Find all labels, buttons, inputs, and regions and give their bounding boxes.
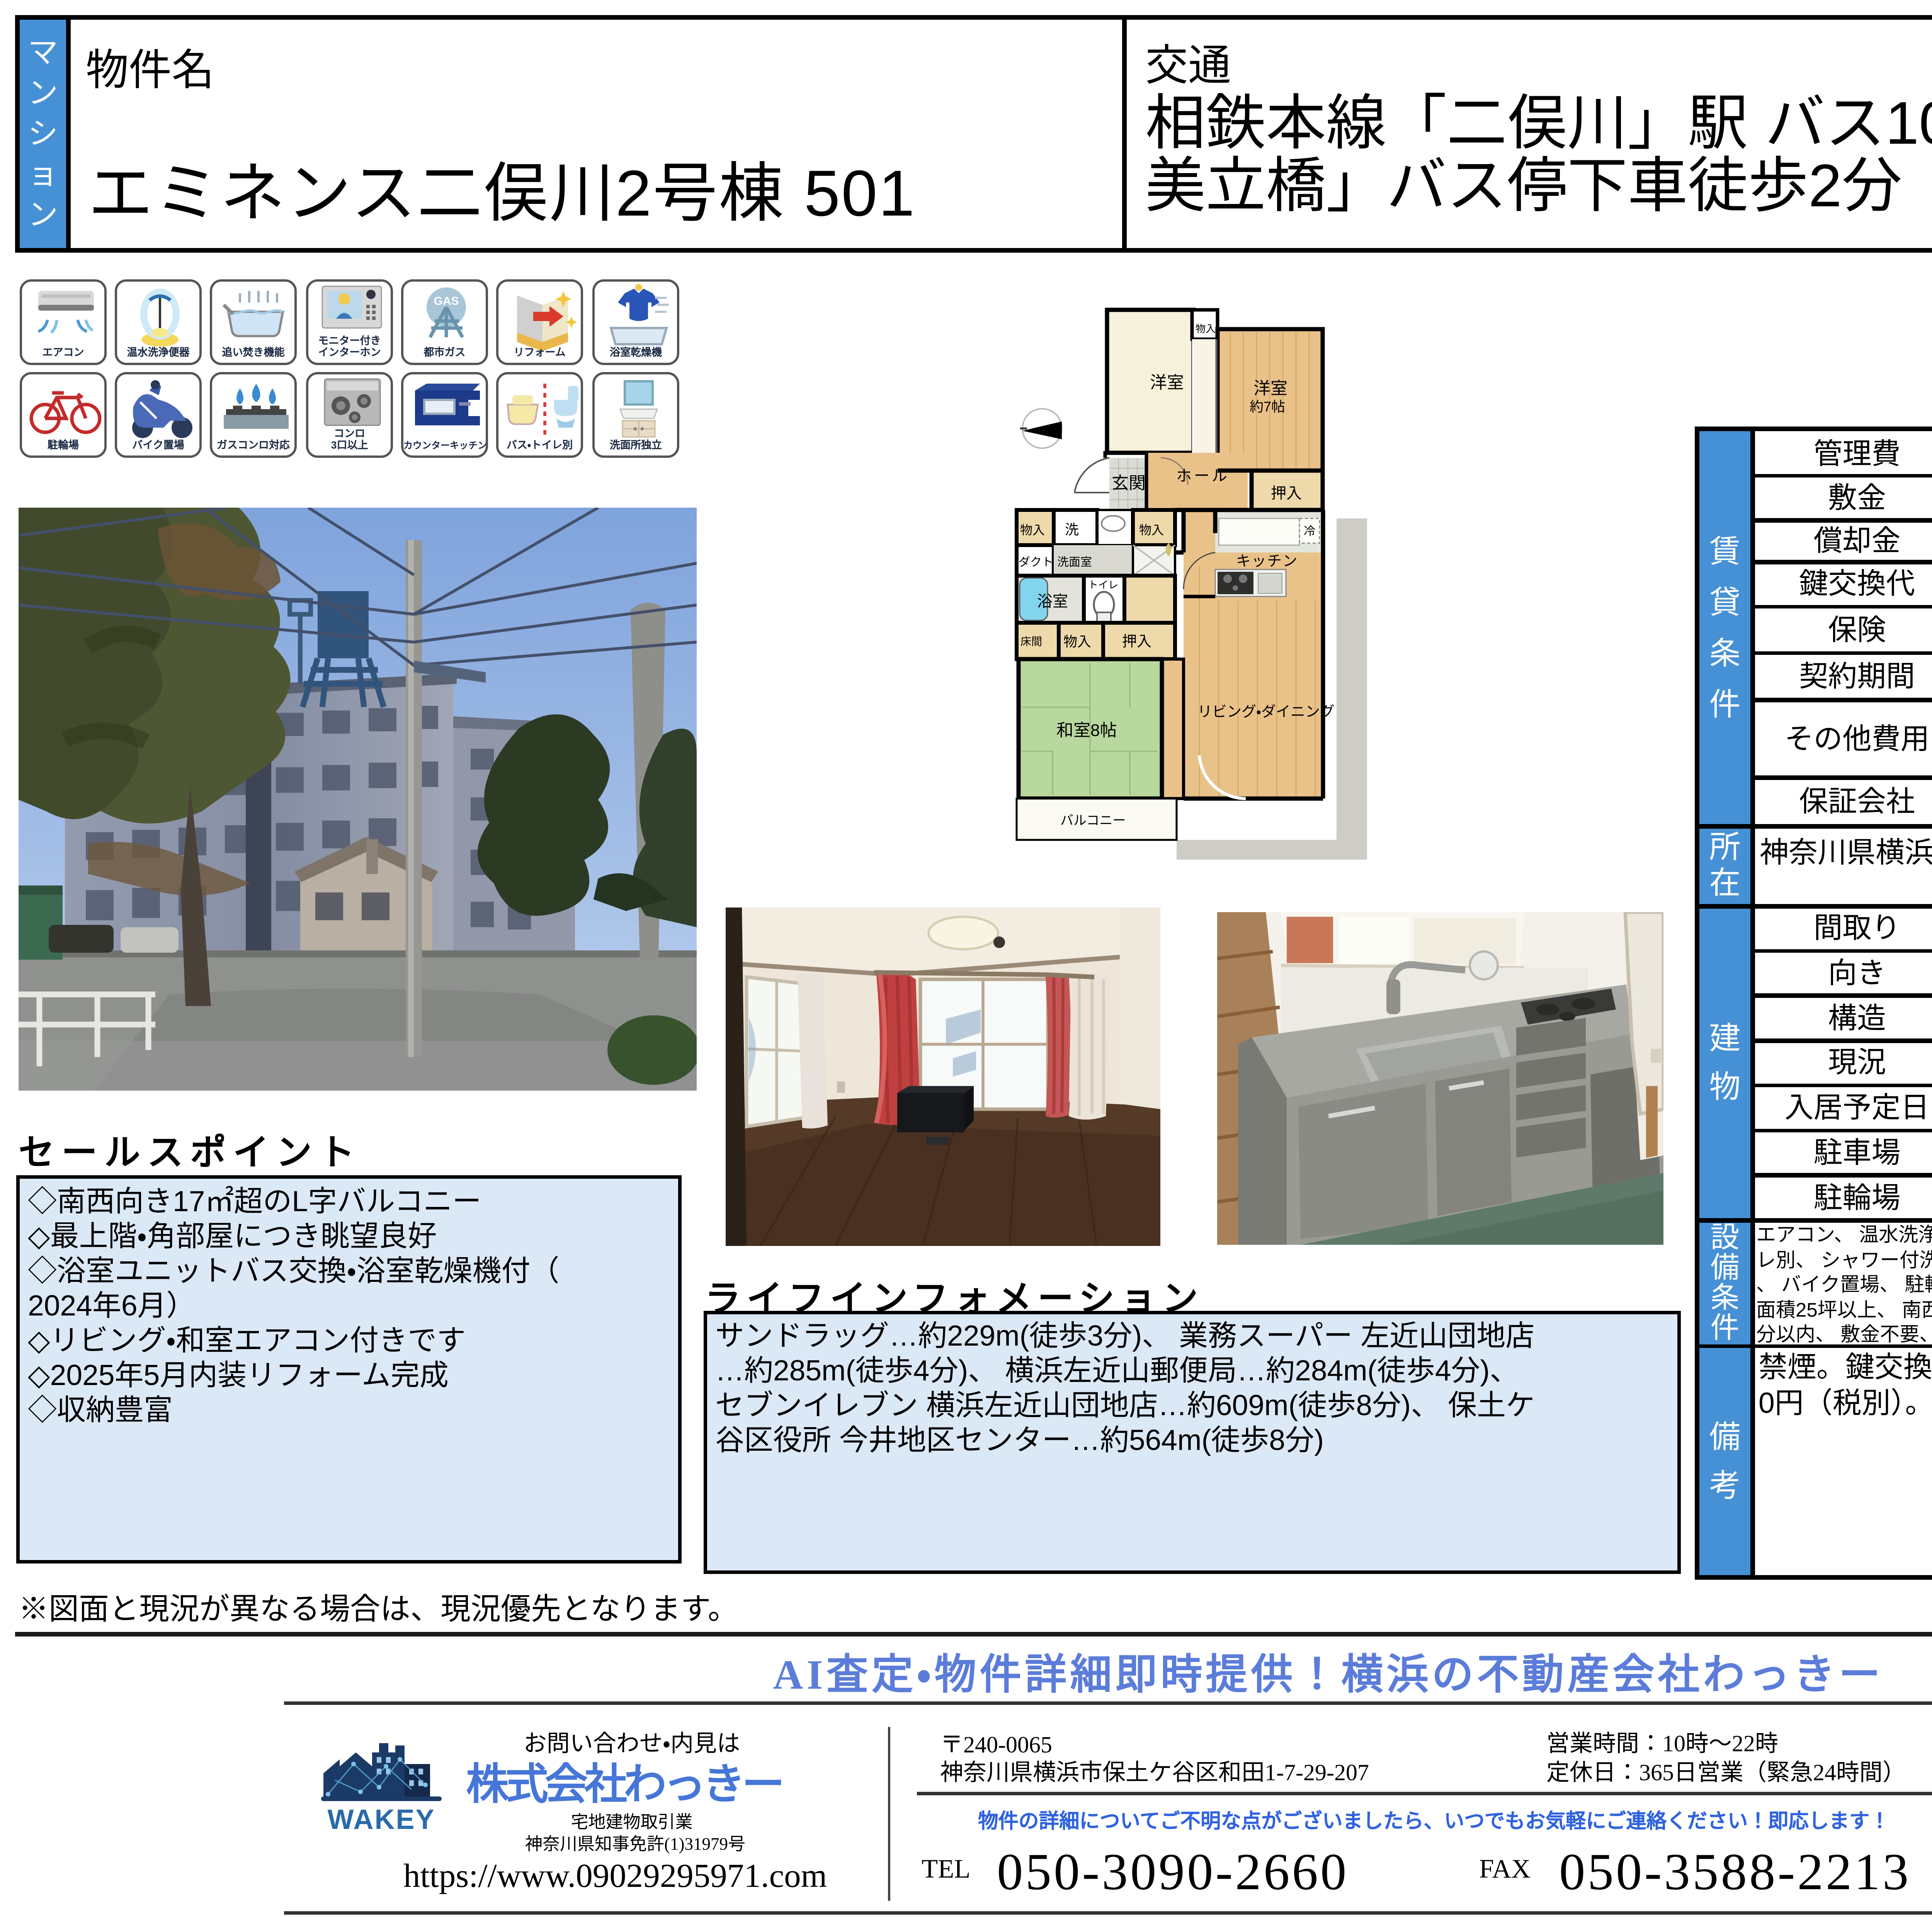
svg-text:物入: 物入 bbox=[1020, 523, 1045, 537]
svg-text:洋室: 洋室 bbox=[1150, 373, 1184, 392]
svg-text:物入: 物入 bbox=[1139, 523, 1164, 537]
svg-text:押入: 押入 bbox=[1122, 634, 1151, 650]
svg-text:ダクト: ダクト bbox=[1019, 556, 1053, 569]
svg-text:洋室: 洋室 bbox=[1253, 379, 1287, 398]
svg-text:トイレ: トイレ bbox=[1088, 579, 1118, 591]
svg-text:物入: 物入 bbox=[1196, 323, 1216, 335]
svg-text:キッチン: キッチン bbox=[1236, 553, 1298, 569]
svg-text:床間: 床間 bbox=[1020, 636, 1042, 647]
svg-text:玄関: 玄関 bbox=[1112, 474, 1146, 493]
svg-text:浴室: 浴室 bbox=[1037, 593, 1068, 610]
svg-text:ホール: ホール bbox=[1176, 467, 1230, 484]
svg-text:洗: 洗 bbox=[1065, 522, 1079, 537]
svg-text:GAS: GAS bbox=[434, 295, 459, 308]
svg-text:和室8帖: 和室8帖 bbox=[1056, 721, 1117, 740]
svg-text:約7帖: 約7帖 bbox=[1250, 399, 1285, 415]
svg-text:リビング・ダイニング: リビング・ダイニング bbox=[1197, 704, 1335, 720]
svg-text:押入: 押入 bbox=[1271, 485, 1302, 502]
svg-text:物入: 物入 bbox=[1063, 634, 1091, 649]
svg-text:冷: 冷 bbox=[1304, 525, 1315, 538]
svg-text:洗面室: 洗面室 bbox=[1057, 556, 1092, 569]
svg-text:バルコニー: バルコニー bbox=[1060, 813, 1126, 828]
svg-text:WAKEY: WAKEY bbox=[327, 1804, 435, 1835]
